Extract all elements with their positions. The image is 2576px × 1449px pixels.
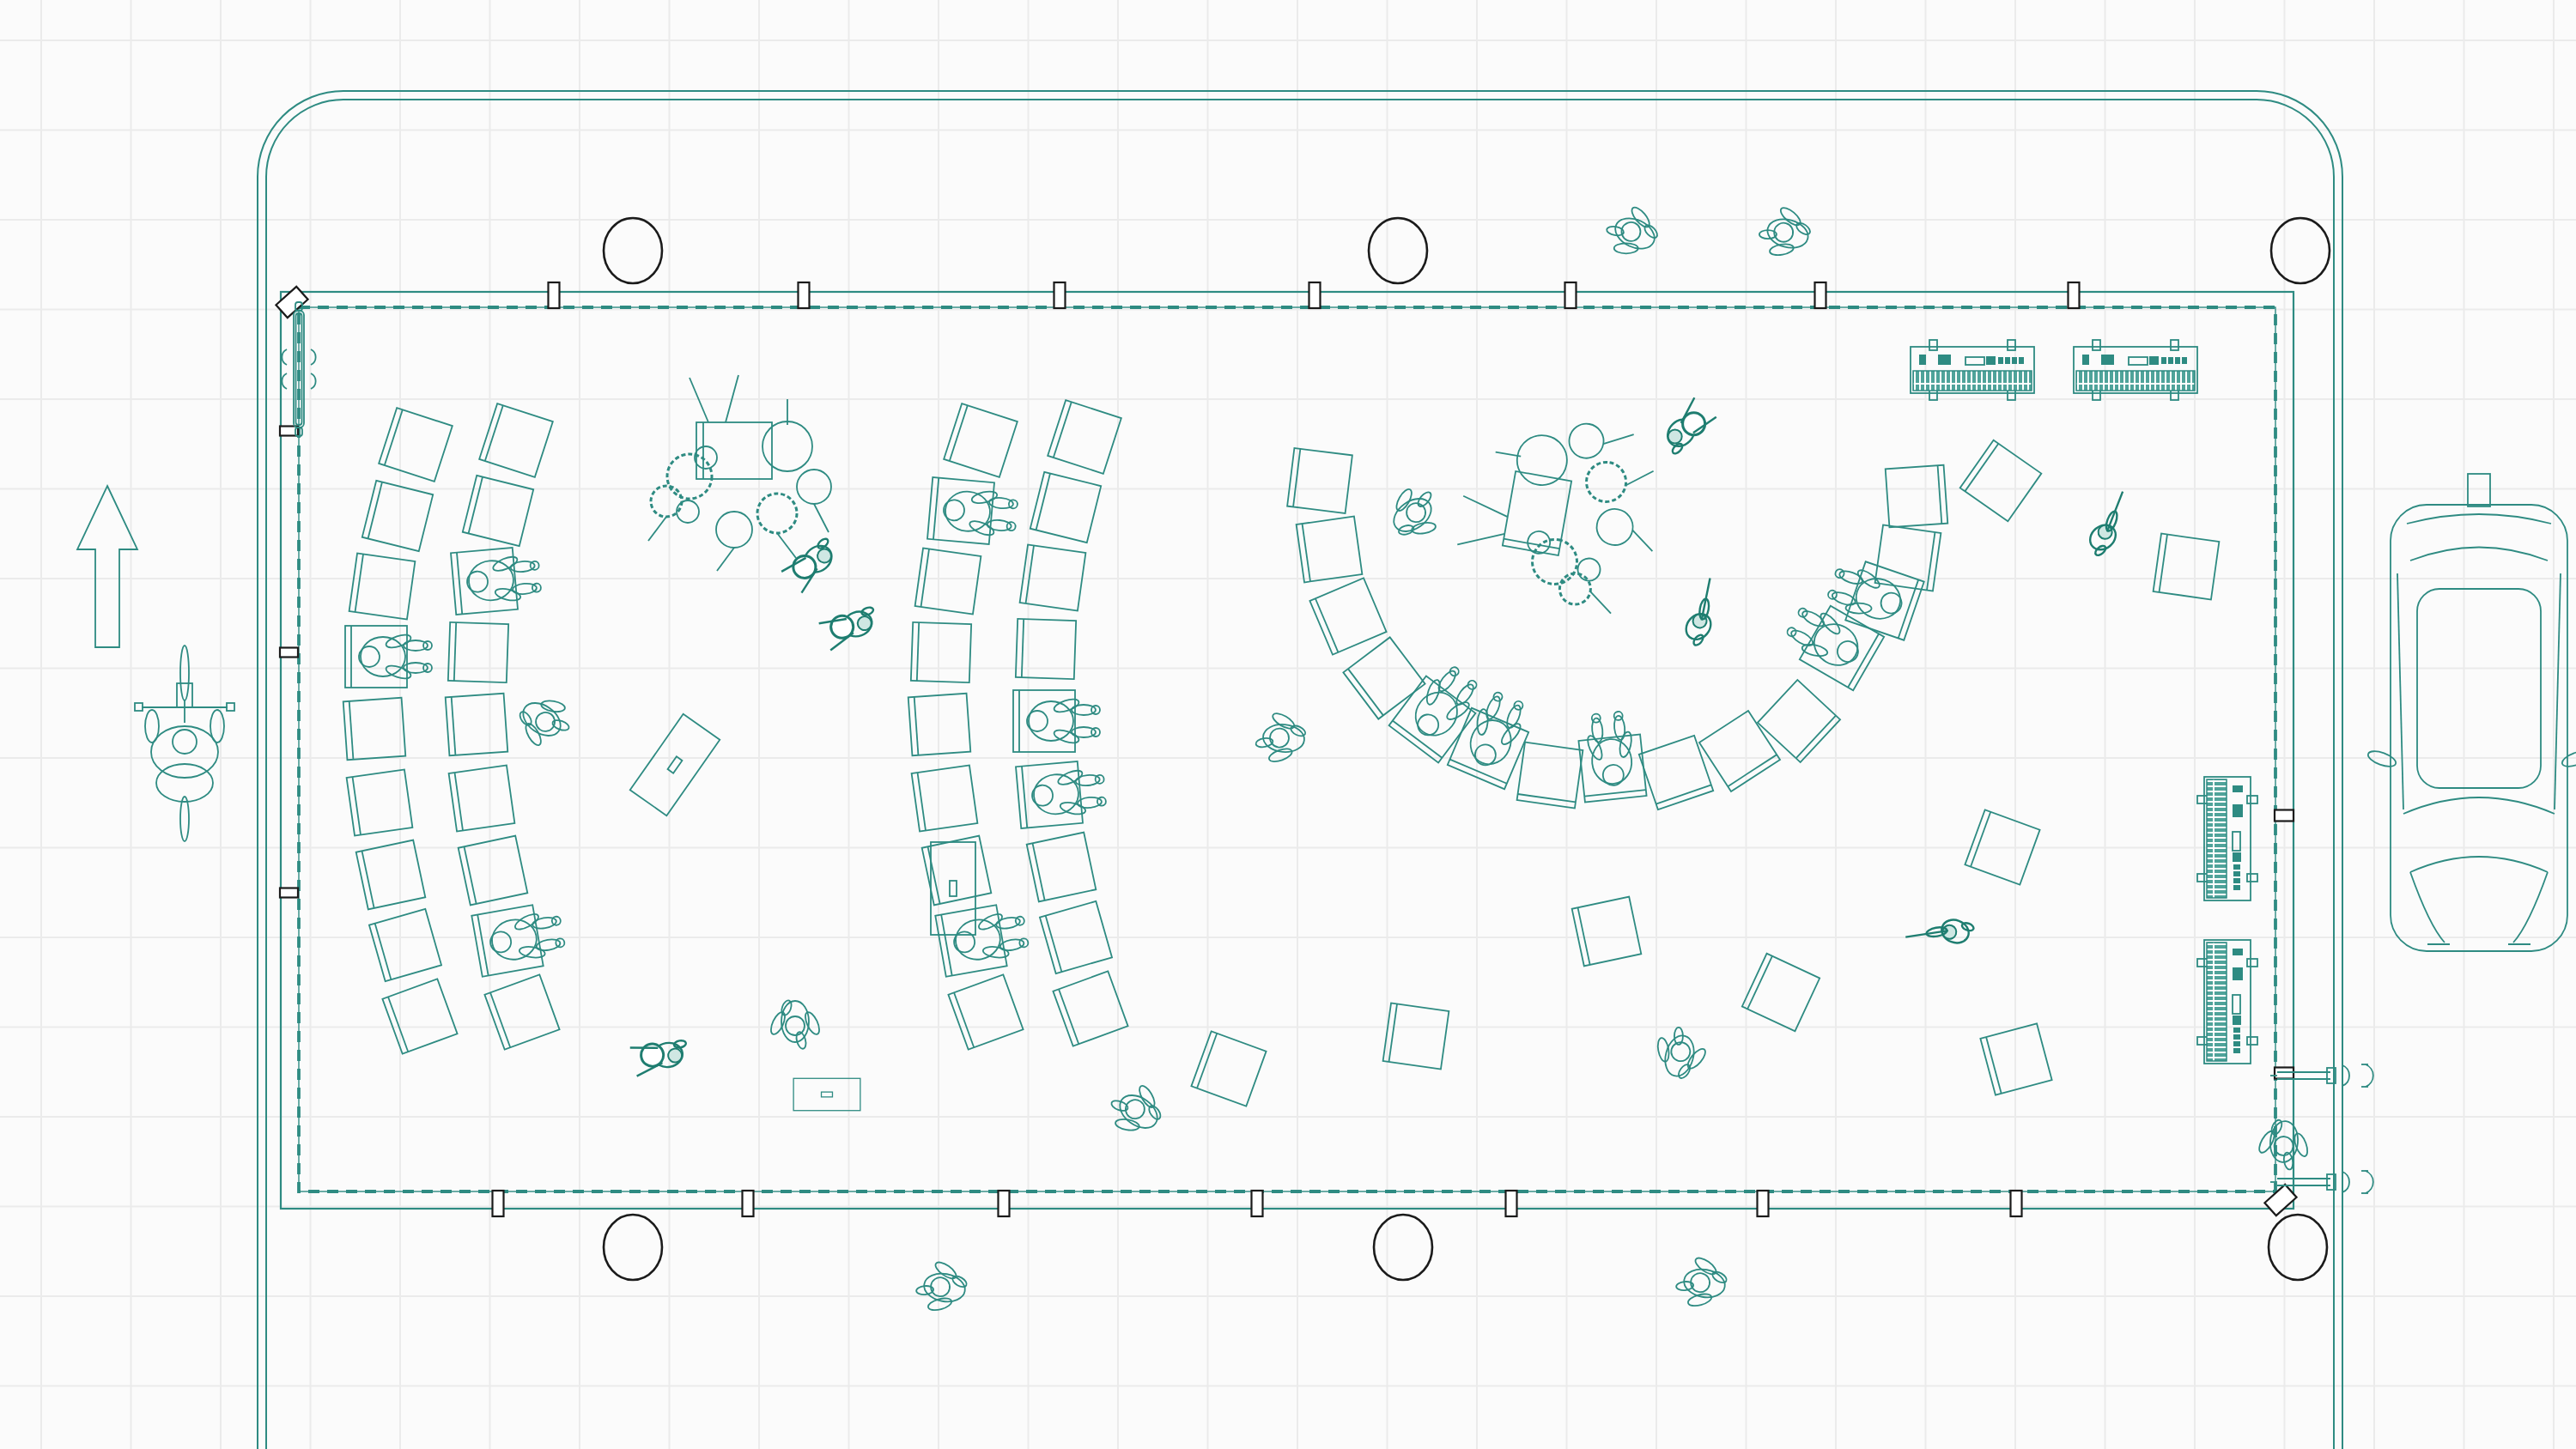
walking-person bbox=[912, 1256, 971, 1318]
desk bbox=[1343, 637, 1425, 718]
desk bbox=[1517, 743, 1583, 809]
desk bbox=[1886, 465, 1948, 528]
desk bbox=[369, 909, 441, 981]
walking-person bbox=[2255, 1117, 2313, 1172]
desk bbox=[382, 979, 457, 1053]
desk bbox=[1027, 833, 1097, 902]
seated-person-at-desk bbox=[345, 626, 432, 688]
walking-person bbox=[769, 999, 823, 1050]
desk bbox=[1980, 1023, 2051, 1094]
electronic-keyboard bbox=[2197, 940, 2257, 1064]
walking-person bbox=[1379, 476, 1451, 549]
desk bbox=[1030, 472, 1101, 543]
bench bbox=[793, 1078, 860, 1110]
drum-kit bbox=[648, 375, 831, 571]
standing-violinist bbox=[2076, 492, 2145, 557]
corner-door-marker bbox=[2264, 1185, 2296, 1216]
wall-post bbox=[1252, 1191, 1263, 1216]
wall-post bbox=[1758, 1191, 1769, 1216]
desk bbox=[347, 770, 413, 836]
seated-person-at-desk bbox=[927, 477, 1019, 547]
walking-person bbox=[508, 684, 580, 757]
bench bbox=[931, 842, 975, 935]
desk bbox=[1758, 680, 1840, 762]
furniture-and-people-layer bbox=[77, 197, 2576, 1319]
wall-post bbox=[2069, 282, 2080, 308]
desk bbox=[1309, 578, 1386, 654]
wall-post bbox=[549, 282, 560, 308]
desk bbox=[349, 554, 416, 620]
wall-post bbox=[2275, 1068, 2293, 1079]
structure-layer bbox=[258, 91, 2373, 1449]
desk bbox=[463, 476, 533, 546]
column bbox=[2269, 1215, 2327, 1280]
seated-drummer bbox=[630, 1038, 690, 1076]
desk bbox=[459, 836, 528, 906]
seated-person-at-desk bbox=[471, 900, 568, 976]
building-outline-outer bbox=[258, 91, 2342, 1449]
desk bbox=[912, 766, 978, 832]
seated-person-at-desk bbox=[1448, 685, 1539, 789]
desk bbox=[1875, 525, 1941, 591]
desk bbox=[908, 694, 971, 756]
wall-post bbox=[280, 648, 298, 658]
wall-post bbox=[1506, 1191, 1517, 1216]
floor-plan-canvas bbox=[0, 0, 2576, 1449]
column bbox=[1369, 218, 1427, 283]
desk bbox=[1287, 448, 1352, 513]
desk bbox=[2154, 534, 2220, 600]
desk bbox=[362, 481, 433, 551]
desk bbox=[911, 622, 971, 682]
walking-person bbox=[1753, 200, 1816, 265]
electronic-keyboard bbox=[2197, 777, 2257, 900]
wall-post bbox=[999, 1191, 1010, 1216]
wall-post bbox=[743, 1191, 754, 1216]
seated-person-at-desk bbox=[935, 900, 1031, 976]
standing-violinist bbox=[1671, 578, 1736, 646]
desk bbox=[446, 694, 508, 756]
column bbox=[1374, 1215, 1432, 1280]
wall-post bbox=[1815, 282, 1826, 308]
desk bbox=[1020, 545, 1086, 611]
room-wall-outer bbox=[281, 292, 2293, 1209]
car bbox=[2366, 474, 2576, 951]
seated-person-at-desk bbox=[1576, 710, 1646, 803]
desk bbox=[915, 549, 981, 615]
desk bbox=[1960, 440, 2042, 522]
desk bbox=[484, 974, 559, 1049]
seated-drummer bbox=[781, 536, 843, 594]
desk bbox=[944, 403, 1018, 477]
desk bbox=[1048, 400, 1121, 474]
wall-post bbox=[799, 282, 810, 308]
cyclist bbox=[135, 646, 234, 841]
column bbox=[2271, 218, 2330, 283]
desk bbox=[1742, 954, 1820, 1031]
desk bbox=[448, 622, 508, 682]
wall-post bbox=[493, 1191, 504, 1216]
wall-post bbox=[2011, 1191, 2022, 1216]
seated-person-at-desk bbox=[1822, 554, 1924, 640]
desk bbox=[1040, 901, 1112, 973]
desk bbox=[379, 408, 453, 482]
desk bbox=[1383, 1003, 1449, 1070]
seated-drummer bbox=[1656, 397, 1716, 457]
walking-person bbox=[1598, 197, 1667, 268]
desk bbox=[356, 840, 426, 910]
column bbox=[604, 1215, 662, 1280]
electronic-keyboard bbox=[1911, 340, 2034, 400]
floor-plan-svg bbox=[0, 0, 2576, 1449]
wall-post bbox=[2275, 810, 2293, 822]
column bbox=[604, 218, 662, 283]
building-outline-inner bbox=[266, 100, 2334, 1449]
desk bbox=[1572, 897, 1642, 967]
desk bbox=[1016, 619, 1076, 679]
direction-arrow bbox=[77, 486, 137, 647]
seated-person-at-desk bbox=[1013, 690, 1100, 752]
desk bbox=[1053, 971, 1127, 1046]
standing-violinist bbox=[1905, 905, 1974, 958]
desk bbox=[479, 403, 553, 477]
wall-post bbox=[1565, 282, 1577, 308]
desk bbox=[1699, 711, 1780, 791]
desk bbox=[1297, 517, 1363, 583]
walking-person bbox=[1672, 1252, 1731, 1313]
electronic-keyboard bbox=[2074, 340, 2197, 400]
seated-person-at-desk bbox=[1778, 593, 1884, 690]
wall-post bbox=[1054, 282, 1066, 308]
desk bbox=[343, 698, 406, 761]
wall-post bbox=[280, 888, 298, 898]
desk bbox=[1965, 809, 2039, 884]
walking-person bbox=[1100, 1073, 1172, 1146]
desk bbox=[449, 766, 515, 832]
seated-drummer bbox=[819, 604, 882, 651]
walking-person bbox=[1253, 709, 1308, 767]
seated-person-at-desk bbox=[1016, 759, 1108, 828]
drum-kit bbox=[1448, 404, 1673, 618]
seated-person-at-desk bbox=[451, 545, 543, 615]
walking-person bbox=[1648, 1022, 1713, 1084]
wall-post bbox=[1309, 282, 1321, 308]
desk bbox=[948, 974, 1023, 1049]
bench bbox=[630, 714, 720, 815]
desk bbox=[1191, 1031, 1266, 1106]
